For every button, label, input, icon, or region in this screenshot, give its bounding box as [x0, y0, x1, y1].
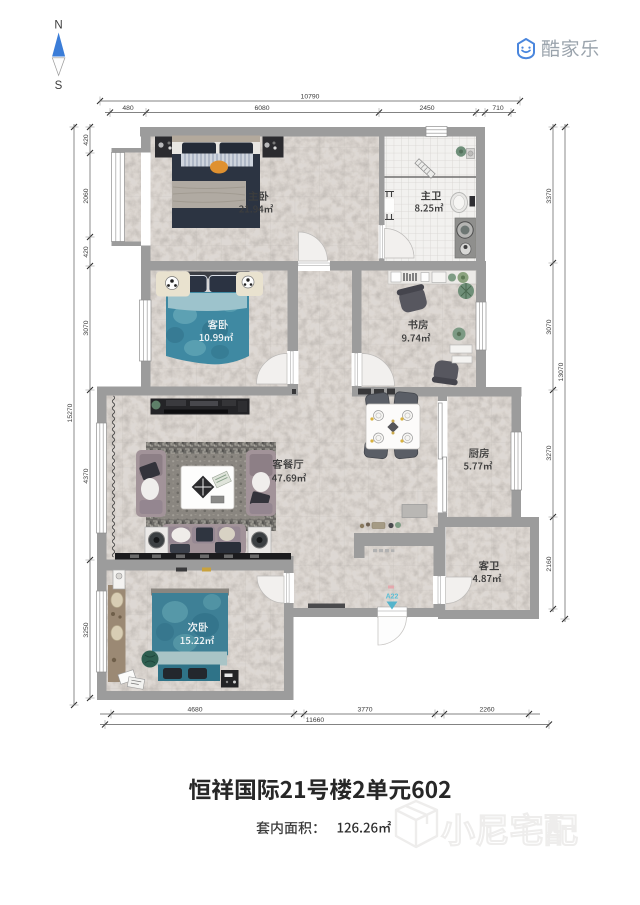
svg-text:11660: 11660	[306, 717, 325, 724]
svg-text:2060: 2060	[83, 188, 90, 203]
svg-text:2160: 2160	[546, 556, 553, 571]
svg-text:3070: 3070	[83, 320, 90, 335]
svg-text:N: N	[54, 20, 62, 32]
svg-text:3370: 3370	[546, 188, 553, 203]
svg-text:480: 480	[122, 105, 134, 112]
svg-text:710: 710	[492, 105, 504, 112]
svg-text:2450: 2450	[419, 105, 434, 112]
svg-text:S: S	[55, 80, 63, 92]
svg-text:3770: 3770	[357, 707, 372, 714]
svg-text:15270: 15270	[67, 403, 74, 422]
svg-text:4370: 4370	[83, 468, 90, 483]
svg-text:10790: 10790	[301, 94, 320, 101]
svg-text:A22: A22	[386, 594, 399, 601]
svg-text:420: 420	[83, 246, 90, 258]
svg-text:2260: 2260	[479, 707, 494, 714]
svg-text:6080: 6080	[254, 105, 269, 112]
svg-text:3270: 3270	[546, 445, 553, 460]
svg-text:13070: 13070	[558, 362, 565, 381]
svg-text:3250: 3250	[83, 622, 90, 637]
svg-text:420: 420	[83, 134, 90, 146]
svg-text:3070: 3070	[546, 319, 553, 334]
svg-text:4680: 4680	[187, 707, 202, 714]
